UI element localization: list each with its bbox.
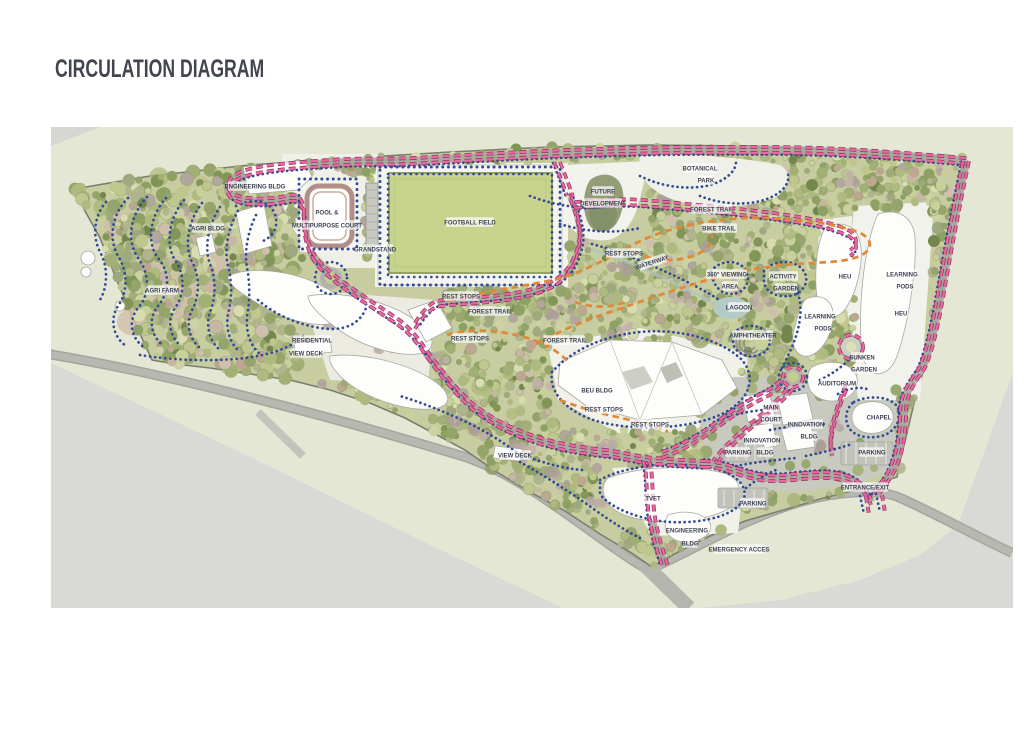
- svg-text:ACTIVITY: ACTIVITY: [769, 274, 796, 280]
- svg-text:PODS: PODS: [814, 326, 831, 332]
- svg-text:REST STOPS: REST STOPS: [605, 251, 643, 257]
- svg-text:ENGINEERING: ENGINEERING: [666, 528, 708, 534]
- svg-text:ENTRANCE/EXIT: ENTRANCE/EXIT: [841, 485, 890, 491]
- svg-text:AGRI FARM: AGRI FARM: [145, 288, 179, 294]
- svg-text:REST STOPS: REST STOPS: [631, 422, 669, 428]
- svg-text:LEARNING: LEARNING: [886, 272, 918, 278]
- svg-text:VIEW DECK: VIEW DECK: [498, 453, 533, 459]
- svg-text:POOL &: POOL &: [316, 210, 340, 216]
- svg-text:PODS: PODS: [896, 284, 913, 290]
- svg-text:LAGOON: LAGOON: [726, 305, 752, 311]
- svg-text:BEU BLDG: BEU BLDG: [581, 388, 613, 394]
- svg-text:REST STOPS: REST STOPS: [585, 407, 623, 413]
- svg-text:FOREST TRAIL: FOREST TRAIL: [468, 309, 512, 315]
- svg-text:REST STOPS: REST STOPS: [451, 336, 489, 342]
- svg-text:360° VIEWING: 360° VIEWING: [707, 272, 747, 278]
- svg-text:AGRI BLDG: AGRI BLDG: [191, 226, 225, 232]
- svg-text:AREA: AREA: [721, 284, 739, 290]
- svg-text:AUDITORIUM: AUDITORIUM: [818, 381, 856, 387]
- svg-text:CHAPEL: CHAPEL: [867, 415, 892, 421]
- svg-text:INNOVATION: INNOVATION: [788, 422, 825, 428]
- svg-text:BIKE TRAIL: BIKE TRAIL: [702, 226, 736, 232]
- svg-text:GARDEN: GARDEN: [773, 286, 799, 292]
- svg-text:PARKING: PARKING: [858, 450, 886, 456]
- svg-text:MAIN: MAIN: [763, 405, 778, 411]
- svg-text:REST STOPS: REST STOPS: [442, 294, 480, 300]
- svg-text:RESIDENTIAL: RESIDENTIAL: [292, 338, 332, 344]
- svg-text:PARKING: PARKING: [724, 450, 752, 456]
- svg-text:FOREST TRAIL: FOREST TRAIL: [690, 207, 734, 213]
- svg-text:TVET: TVET: [645, 496, 661, 502]
- svg-text:BLDG: BLDG: [801, 434, 818, 440]
- svg-text:COURT: COURT: [760, 417, 782, 423]
- svg-text:FOOTBALL FIELD: FOOTBALL FIELD: [444, 220, 496, 226]
- svg-text:MULTIPURPOSE COURT: MULTIPURPOSE COURT: [292, 223, 363, 229]
- svg-text:VIEW DECK: VIEW DECK: [289, 351, 324, 357]
- svg-text:AMPHITHEATER: AMPHITHEATER: [729, 333, 777, 339]
- svg-text:FOREST TRAIL: FOREST TRAIL: [543, 338, 587, 344]
- svg-text:LEARNING: LEARNING: [804, 314, 836, 320]
- svg-text:PARK: PARK: [698, 178, 715, 184]
- svg-text:SUNKEN: SUNKEN: [849, 355, 874, 361]
- svg-text:GRANDSTAND: GRANDSTAND: [354, 247, 397, 253]
- svg-text:GARDEN: GARDEN: [851, 367, 877, 373]
- svg-text:INNOVATION: INNOVATION: [744, 438, 781, 444]
- svg-text:ENGINEERING BLDG: ENGINEERING BLDG: [225, 184, 286, 190]
- svg-text:EMERGENCY ACCES: EMERGENCY ACCES: [708, 547, 769, 553]
- svg-text:HEU: HEU: [895, 311, 908, 317]
- svg-text:HEU: HEU: [839, 274, 852, 280]
- svg-text:DEVELOPMENT: DEVELOPMENT: [580, 201, 626, 207]
- svg-text:BOTANICAL: BOTANICAL: [683, 166, 718, 172]
- svg-text:BLDG: BLDG: [757, 450, 774, 456]
- svg-text:FUTURE: FUTURE: [591, 189, 615, 195]
- svg-text:PARKING: PARKING: [739, 501, 767, 507]
- svg-text:BLDG: BLDG: [682, 541, 699, 547]
